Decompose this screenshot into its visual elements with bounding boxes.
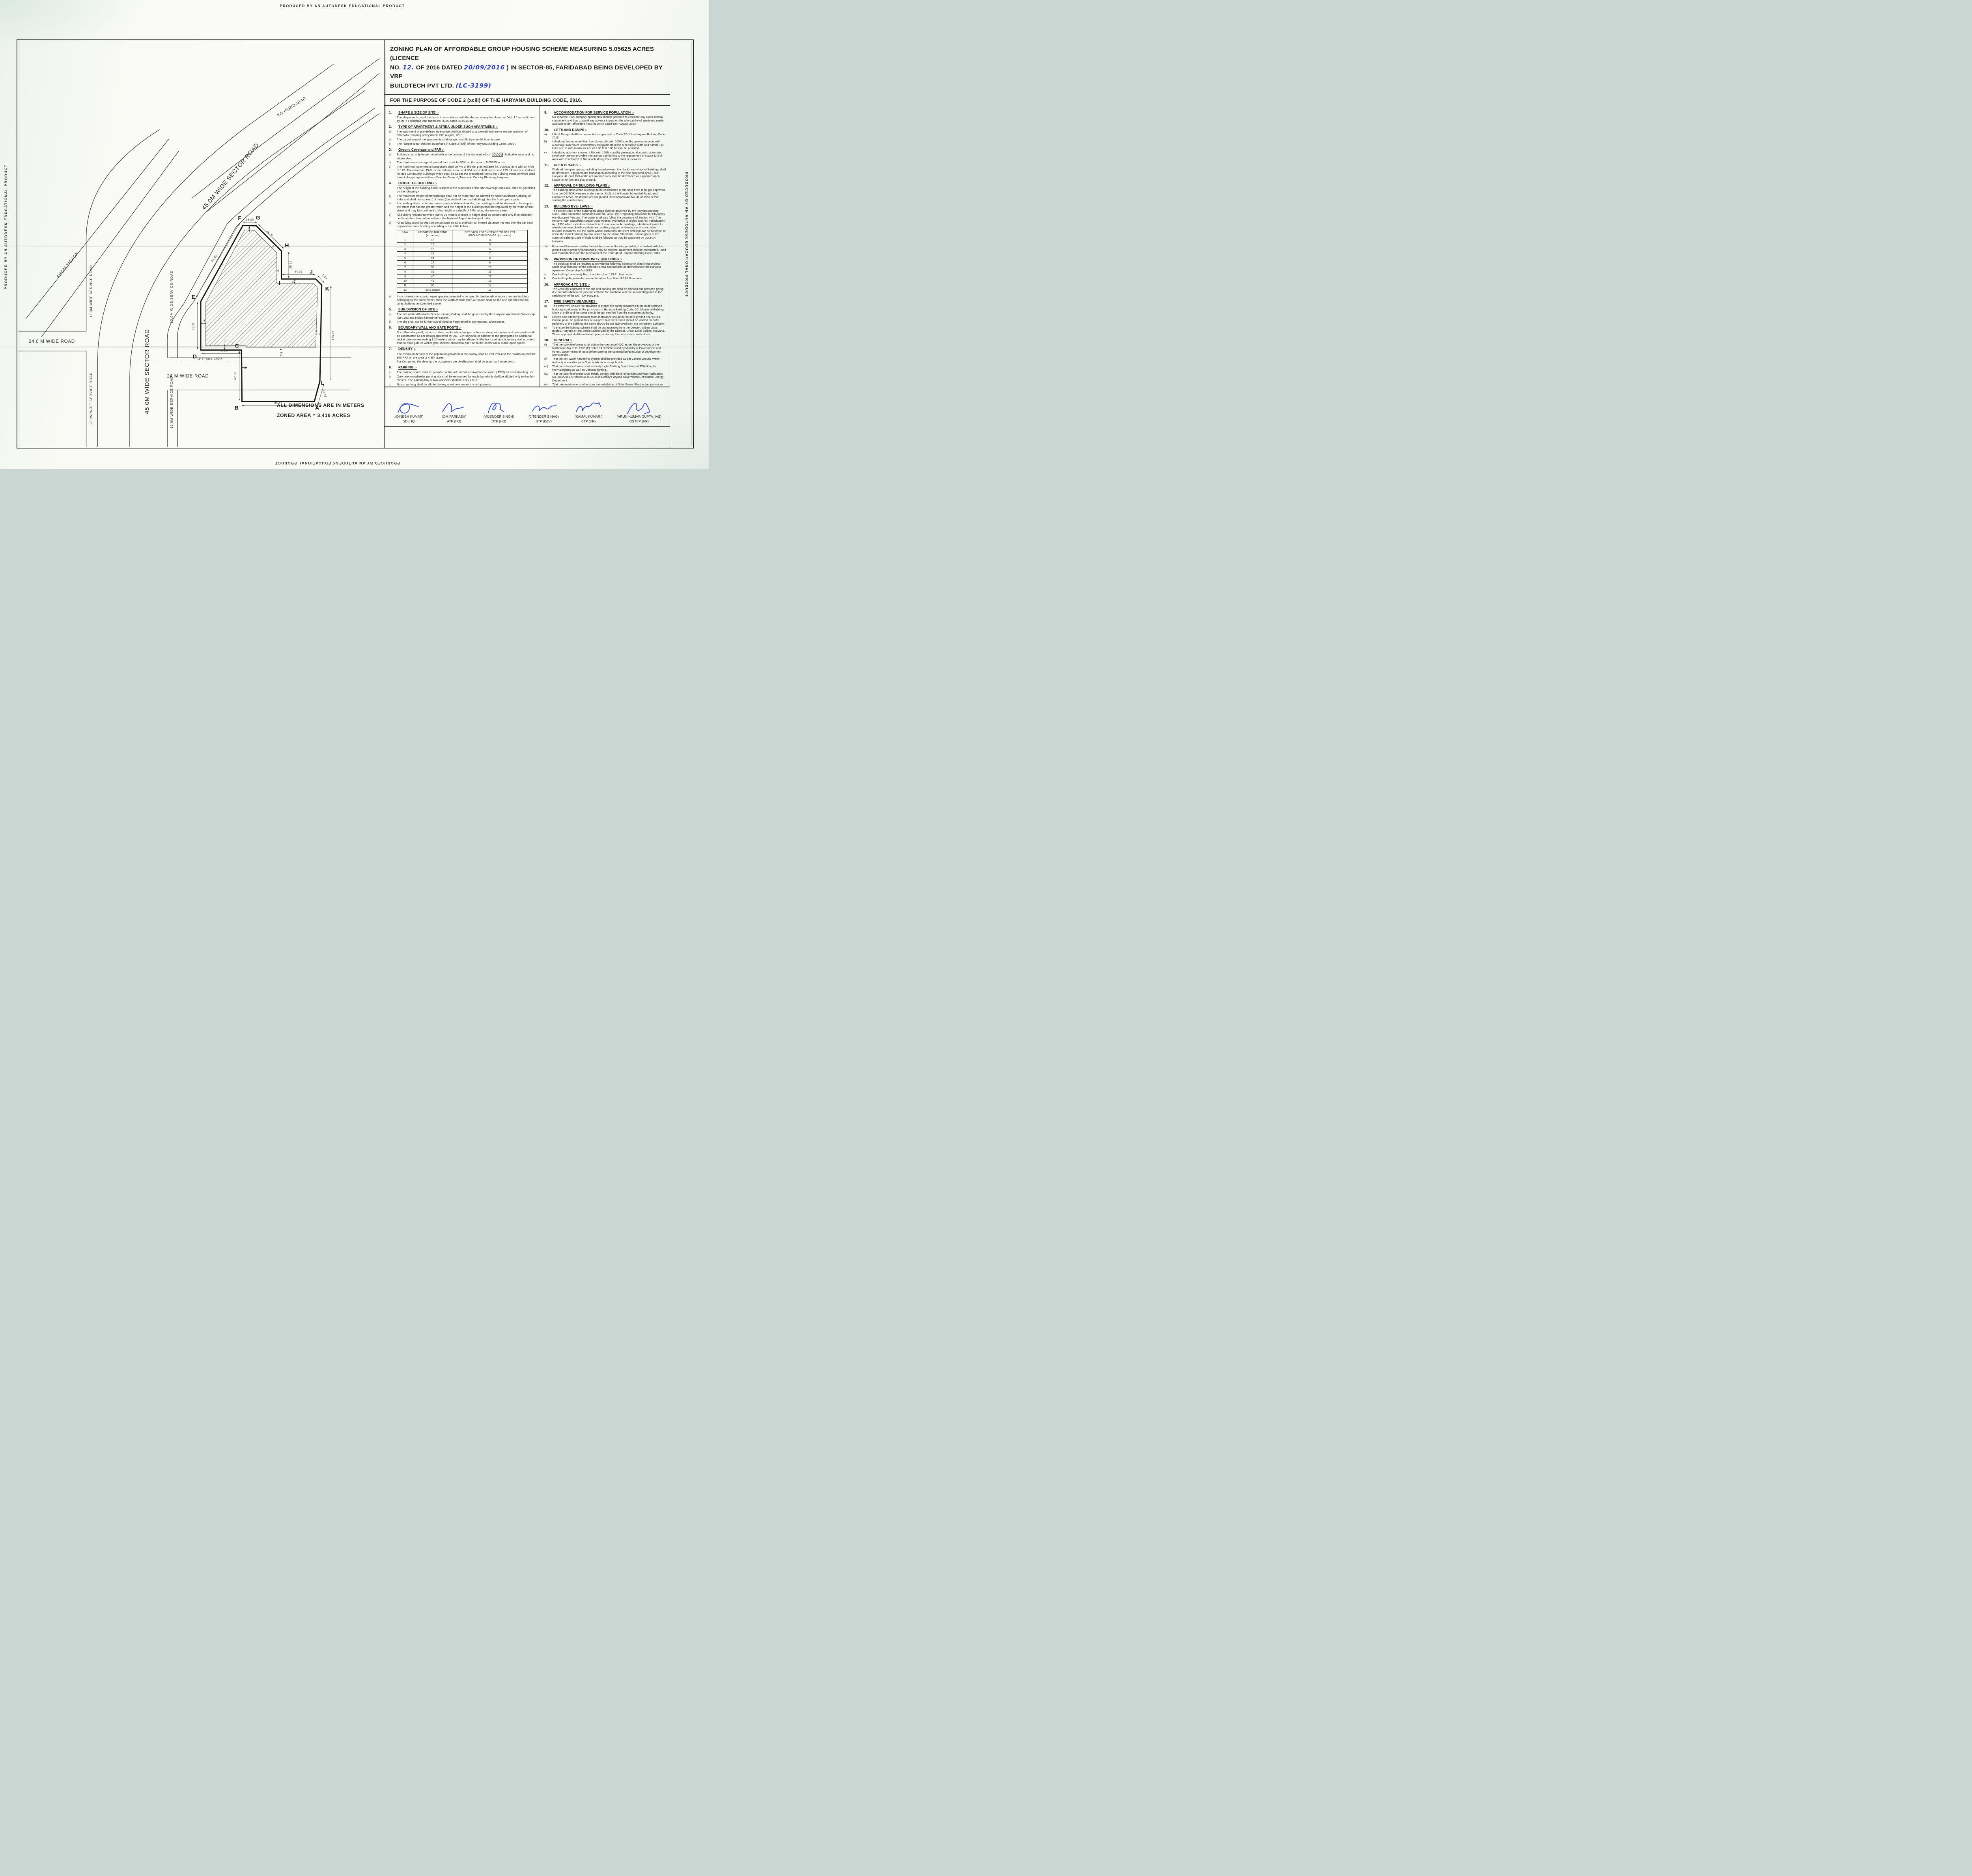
title-block: ZONING PLAN OF AFFORDABLE GROUP HOUSING … (385, 40, 670, 95)
clauses-column-right: 9.ACCOMMODATION FOR SERVICE POPULATION :… (540, 106, 670, 387)
clause-text: That the coloniser/owner shall use only … (552, 365, 666, 372)
clause-title: PARKING :- (398, 365, 417, 369)
dimension-label: 6 (224, 340, 225, 343)
clause-item: The building plans of the buildings to b… (544, 189, 666, 202)
signatory: (KAMAL KUMAR )CTP (HR) (572, 400, 605, 424)
dimension-label: 29.51 (289, 261, 292, 269)
road-label: 12.0M WIDE SERVICE ROAD (170, 271, 174, 323)
header-line: AROUND BUILDINGS. (in meters) (454, 234, 526, 237)
road-label: 45.0M WIDE SECTOR ROAD (144, 329, 151, 414)
clause-item: b)The carpet area of the apartments shal… (389, 138, 536, 141)
clause-item-label: a) (544, 305, 552, 315)
autodesk-note-left: PRODUCED BY AN AUTODESK EDUCATIONAL PROD… (4, 164, 8, 290)
buildable-zone-hatch (205, 230, 318, 347)
clause-item: While all the open spaces including thos… (544, 168, 666, 181)
clause-text: That coloniser/owner shall ensure the in… (552, 383, 666, 387)
table-cell: 55 & above (413, 288, 452, 293)
text-panel: ZONING PLAN OF AFFORDABLE GROUP HOUSING … (384, 40, 693, 448)
clause-item: c)All building /structures which rise to… (389, 213, 536, 220)
signature-scribble (622, 400, 655, 415)
clause-title: ACCOMMODATION FOR SERVICE POPULATION :- (554, 110, 634, 114)
clause-item-label: a) (389, 312, 397, 320)
signatory-name: (JITENDER SIHAG) (527, 414, 560, 419)
signature-scribble (527, 400, 560, 415)
clause-title: PROVISION OF COMMUNITY BUILDINGS :- (554, 257, 622, 261)
clause-section: 12.APPROVAL OF BUILDING PLANS :-The buil… (544, 183, 666, 202)
clause-text: If such interior or exterior open space … (397, 295, 536, 305)
clause-section: 14.Four level Basements within the build… (544, 245, 666, 255)
clause-number: 6. (389, 325, 398, 329)
table-cell: 5 (397, 256, 413, 261)
road-label: 24 M WIDE ROAD (167, 374, 209, 379)
signatory-title: DGTCP (HR) (617, 419, 661, 424)
table-cell: 9 (397, 274, 413, 279)
clause-heading: 2.TYPE OF APARTMENT & ATREA UNDER SUCH A… (389, 125, 536, 129)
road-label: 24.0 M WIDE ROAD (29, 339, 75, 344)
clause-title: APPROACH TO SITE :- (554, 282, 590, 286)
table-header-row: S.No.HEIGHT OF BUILDING(in meters)SET BA… (397, 230, 528, 238)
clause-item-label: b) (389, 161, 397, 164)
table-cell: 35 (413, 270, 452, 275)
plot-vertex-label: E (192, 293, 195, 300)
clause-title: DENSITY :- (398, 347, 416, 351)
clause-item-label: a) (544, 133, 552, 140)
clause-number: 17. (544, 299, 554, 303)
clause-text: The building plans of the buildings to b… (552, 189, 666, 202)
clause-text: Lifts & Ramps shall be constructed as sp… (552, 133, 666, 140)
clause-item-label: c) (389, 213, 397, 220)
header-line: (in meters) (415, 234, 451, 237)
clause-item: Such Boundary wall, railings or their co… (389, 331, 536, 345)
clause-text: The apartment of pre-defined size-range … (397, 130, 536, 137)
site-plan: TO FARIDABADFROM TIGAON45.0M WIDE SECTOR… (17, 40, 384, 448)
clause-heading: 9.ACCOMMODATION FOR SERVICE POPULATION :… (544, 110, 666, 114)
road-label: 11'-0" WIDE RASTA (198, 358, 222, 361)
clause-text: The site of the Affordable Group Housing… (397, 312, 536, 320)
clause-heading: 18.GENERAL:- (544, 338, 666, 342)
signatory-title: STP (E&V) (527, 419, 560, 424)
dimension-label: 15.09 (246, 218, 254, 222)
plan-labels: TO FARIDABADFROM TIGAON45.0M WIDE SECTOR… (29, 96, 335, 428)
clause-text: The minimum density of the population pr… (397, 352, 536, 359)
table-cell: 3 (397, 247, 413, 252)
table-cell: 14 (452, 283, 528, 288)
table-row: 73010 (397, 265, 528, 270)
licence-number-handwritten: 12. (403, 64, 414, 71)
clause-title: BUILDING BYE- LAWS :- (554, 204, 593, 208)
table-row: 104513 (397, 279, 528, 284)
clause-item-label (389, 116, 397, 123)
dimension-label: 6 (204, 319, 205, 322)
table-row: 6279 (397, 261, 528, 265)
road-label: 12.0M WIDE SERVICE ROAD (89, 265, 93, 318)
signatory-title: SD (HQ) (393, 419, 426, 424)
clause-heading: 12.APPROVAL OF BUILDING PLANS :- (544, 183, 666, 187)
clauses-area: 1.SHAPE & SIZE OF SITE :-The shape and s… (385, 106, 670, 387)
setback-table: S.No.HEIGHT OF BUILDING(in meters)SET BA… (397, 230, 528, 293)
table-cell: 11 (452, 270, 528, 275)
clause-text: If a building abuts on two or more stree… (397, 202, 536, 212)
clause-item: The height of the building block, subjec… (389, 186, 536, 193)
clause-text: In building having more than four storey… (552, 140, 666, 150)
plot-vertex-label: D (193, 353, 197, 359)
clause-heading: 17.FIRE SAFETY MEASURES : (544, 299, 666, 303)
clause-number: 18. (544, 338, 554, 342)
clause-item-label: b. (389, 375, 397, 382)
clause-title: OPEN SPACES :- (554, 163, 581, 167)
clause-item: a)Building shall only be permitted with … (389, 153, 536, 160)
dimension-label: 6 (277, 269, 279, 273)
clause-item: c)To ensure fire fighting scheme shall b… (544, 326, 666, 336)
clause-section: 16.APPROACH TO SITE :-The vehicular appr… (544, 282, 666, 298)
road-label: 12.0M WIDE SERVICE ROAD (170, 376, 174, 428)
clause-title: GENERAL:- (554, 338, 572, 342)
clause-text: All Building Block(s) shall be construct… (397, 221, 536, 228)
clause-item-label: c. (389, 383, 397, 386)
table-row: 3186 (397, 247, 528, 252)
clause-number: 7. (389, 347, 398, 351)
dimension-label: 10.25 (321, 389, 327, 398)
clause-item: The minimum density of the population pr… (389, 352, 536, 359)
clause-item: a)The site of the Affordable Group Housi… (389, 312, 536, 320)
table-cell: 9 (452, 261, 528, 265)
sheet-border: TO FARIDABADFROM TIGAON45.0M WIDE SECTOR… (17, 39, 694, 448)
clause-item: a)The owner will ensure the provision of… (544, 305, 666, 315)
signatory-name: (OM PARKASH) (437, 414, 471, 419)
dimension-label: 45.26 (192, 322, 195, 330)
table-row: 1255 & above16 (397, 288, 528, 293)
signatory-title: CTP (HR) (572, 419, 605, 424)
clause-item: a)The apartment of pre-defined size-rang… (389, 130, 536, 137)
clause-section: 7.DENSITY :-The minimum density of the p… (389, 347, 536, 363)
clause-item-label: (i) (544, 343, 552, 357)
clause-item: d)All Building Block(s) shall be constru… (389, 221, 536, 228)
signatory: (OM PARKASH)ATP (HQ) (437, 400, 471, 424)
signature-scribble (572, 400, 605, 415)
clause-text: For Computing the density, the occupancy… (397, 360, 536, 363)
clause-text: Only one two-wheeler parking site shall … (397, 375, 536, 382)
table-header-cell: S.No. (397, 230, 413, 238)
clause-text: The maximum height of the buildings shal… (397, 194, 536, 201)
table-cell: 10 (397, 279, 413, 284)
clause-item-label (544, 168, 552, 181)
dimension-label: 6 (245, 366, 246, 370)
clause-number: 2. (389, 125, 398, 129)
clause-number: 9. (544, 110, 554, 114)
plot-vertex-label: L (321, 380, 325, 386)
lc-number-handwritten: (LC-3199) (456, 82, 491, 89)
clause-title: SHAPE & SIZE OF SITE :- (398, 110, 439, 114)
clause-title: APPROVAL OF BUILDING PLANS :- (554, 183, 610, 187)
road-label: 12.0M WIDE SERVICE ROAD (89, 372, 93, 425)
clause-item: b)Electric Sub Station/generator room if… (544, 316, 666, 326)
clause-text: That the coloniser/owner shall strictly … (552, 372, 666, 383)
purpose-line: FOR THE PURPOSE OF CODE 2 (xciii) OF THE… (385, 95, 670, 106)
clause-item: c)The maximum commercial component shall… (389, 165, 536, 179)
clause-item-label: b) (389, 320, 397, 323)
table-cell: 2 (397, 243, 413, 247)
clause-item-label: (v) (544, 383, 552, 387)
dimension-label: 8 (280, 352, 283, 353)
clause-text: One built-up community Hall of not less … (552, 273, 666, 277)
signatory-name: (VIJENDER SINGH) (482, 414, 515, 419)
table-row: 1103 (397, 238, 528, 243)
signatory: (JITENDER SIHAG)STP (E&V) (527, 400, 560, 424)
clause-heading: 5.SUB DIVISION OF SITE :- (389, 307, 536, 311)
clause-item-label (389, 331, 397, 345)
clause-heading: 13.BUILDING BYE- LAWS :- (544, 204, 666, 208)
clause-item-label: (ii) (544, 357, 552, 364)
table-header-cell: HEIGHT OF BUILDING(in meters) (413, 230, 452, 238)
clause-number: 13. (544, 204, 554, 208)
clause-item: For Computing the density, the occupancy… (389, 360, 536, 363)
clause-section: 10.LIFTS AND RAMPS :-a)Lifts & Ramps sha… (544, 128, 666, 161)
road-label: TO FARIDABAD (277, 96, 307, 118)
scanned-zoning-plan-sheet: PRODUCED BY AN AUTODESK EDUCATIONAL PROD… (0, 0, 709, 469)
clause-item-label: b) (389, 202, 397, 212)
buildable-zone-hatch-swatch (492, 153, 503, 157)
clause-text: The coloniser shall be required to provi… (552, 262, 666, 273)
clause-item: c)In building upto four storeys, if lift… (544, 151, 666, 161)
clause-item: b.One built-up Anganwadi-cum-creche of n… (544, 277, 666, 280)
clause-item-label: a) (389, 153, 397, 160)
plot-vertex-label: C (235, 343, 239, 349)
clause-text: No car parking shall be allotted to any … (397, 383, 536, 386)
clause-item-label: c) (544, 326, 552, 336)
clause-item: (i)That the coloniser/owner shall obtain… (544, 343, 666, 357)
plot-vertex-label: B (235, 404, 239, 411)
clause-item: No separate EWS category apartments shal… (544, 116, 666, 126)
dimension-label: 125.75 (331, 331, 335, 340)
clause-number: 12. (544, 183, 554, 187)
clause-item-label: b) (544, 140, 552, 150)
clause-text: While all the open spaces including thos… (552, 168, 666, 181)
title-text: NO. (390, 64, 401, 71)
clause-item: b)The site shall not be further sub-divi… (389, 320, 536, 323)
clause-title: TYPE OF APARTMENT & ATREA UNDER SUCH APA… (398, 125, 498, 129)
table-cell: 5 (452, 243, 528, 247)
clause-text: The parking space shall be provided at t… (397, 370, 536, 374)
signatory-name: (ARUN KUMAR GUPTA, IAS) (617, 414, 661, 419)
dimension-label: 7.25 (321, 273, 328, 280)
clause-title: HEIGHT OF BUILDING :- (398, 181, 437, 185)
clause-text: The site shall not be further sub-divide… (397, 320, 536, 323)
table-cell: 16 (452, 288, 528, 293)
clause-section: 15.PROVISION OF COMMUNITY BUILDINGS :-Th… (544, 257, 666, 280)
signatory: (VIJENDER SINGH)DTP (HQ) (482, 400, 515, 424)
header-line: HEIGHT OF BUILDING (415, 231, 451, 234)
road-network (19, 58, 379, 447)
clause-item-label (544, 209, 552, 243)
clause-item: a.The parking space shall be provided at… (389, 370, 536, 374)
clause-item-label: c) (389, 165, 397, 179)
clause-text: The maximum coverage of ground floor sha… (397, 161, 536, 164)
clause-item-label: a. (544, 273, 552, 277)
clause-title: FIRE SAFETY MEASURES : (554, 299, 598, 303)
table-cell: 6 (397, 261, 413, 265)
plot-vertex-label: J (310, 268, 313, 275)
clause-item: b.Only one two-wheeler parking site shal… (389, 375, 536, 382)
table-cell: 6 (452, 247, 528, 252)
clause-text: The carpet area of the apartments shall … (397, 138, 536, 141)
clause-text: Four level Basements within the building… (552, 245, 666, 255)
clause-item: c)The "carpet area" shall be as defined … (389, 142, 536, 146)
table-cell: 24 (413, 256, 452, 261)
clause-text: To ensure fire fighting scheme shall be … (552, 326, 666, 336)
clause-heading: 16.APPROACH TO SITE :- (544, 282, 666, 286)
plan-note-dimensions: ALL DIMENSIONS ARE IN METERS (277, 402, 364, 408)
clause-heading: 8.PARKING :- (389, 365, 536, 369)
table-cell: 13 (452, 279, 528, 284)
table-cell: 1 (397, 238, 413, 243)
clause-heading: 15.PROVISION OF COMMUNITY BUILDINGS :- (544, 257, 666, 261)
table-cell: 7 (397, 265, 413, 270)
clause-item-label: 14. (544, 245, 552, 255)
signatory-title: DTP (HQ) (482, 419, 515, 424)
clause-item: The construction of the building/buildin… (544, 209, 666, 243)
table-cell: 45 (413, 279, 452, 284)
table-cell: 12 (397, 288, 413, 293)
table-row: 83511 (397, 270, 528, 275)
clause-number: 1. (389, 110, 398, 114)
plot-vertex-label: F (238, 215, 241, 221)
signature-row: (DINESH KUMAR)SD (HQ)(OM PARKASH)ATP (HQ… (385, 387, 670, 427)
signatory: (ARUN KUMAR GUPTA, IAS)DGTCP (HR) (617, 400, 661, 424)
table-cell: 4 (397, 252, 413, 256)
clause-text: All building /structures which rise to 3… (397, 213, 536, 220)
clause-text: Building shall only be permitted with in… (397, 153, 536, 160)
clause-text: In building upto four storeys, if lifts … (552, 151, 666, 161)
clause-text: One built-up Anganwadi-cum-creche of not… (552, 277, 666, 280)
signatory-name: (KAMAL KUMAR ) (572, 414, 605, 419)
clause-item: a)Lifts & Ramps shall be constructed as … (544, 133, 666, 140)
clause-text: The owner will ensure the provision of p… (552, 305, 666, 315)
road-label: FROM TIGAON (56, 251, 80, 279)
clause-item: (v)That coloniser/owner shall ensure the… (544, 383, 666, 387)
clause-item-label: a. (389, 370, 397, 374)
clauses-column-left: 1.SHAPE & SIZE OF SITE :-The shape and s… (385, 106, 540, 387)
table-row: 2155 (397, 243, 528, 247)
title-line-3: BUILDTECH PVT LTD. (LC-3199) (390, 81, 666, 91)
autodesk-note-bottom: PRODUCED BY AN AUTODESK EDUCATIONAL PROD… (275, 461, 400, 465)
table-cell: 11 (397, 283, 413, 288)
clause-section: 18.GENERAL:-(i)That the coloniser/owner … (544, 338, 666, 387)
clause-text: The "carpet area" shall be as defined in… (397, 142, 536, 146)
clause-section: e)If such interior or exterior open spac… (389, 295, 536, 305)
clause-item-label: d) (389, 221, 397, 228)
table-row: 4217 (397, 252, 528, 256)
clause-number: 15. (544, 257, 554, 261)
clause-title: BOUNDARY WALL AND GATE POSTS :- (398, 325, 461, 329)
clause-text: Such Boundary wall, railings or their co… (397, 331, 536, 345)
clause-heading: 7.DENSITY :- (389, 347, 536, 351)
clause-number: 8. (389, 365, 398, 369)
clause-item-label: e) (389, 295, 397, 305)
clause-heading: 1.SHAPE & SIZE OF SITE :- (389, 110, 536, 114)
signatory-name: (DINESH KUMAR) (393, 414, 426, 419)
clause-section: 5.SUB DIVISION OF SITE :-a)The site of t… (389, 307, 536, 324)
clause-item-label (544, 116, 552, 126)
clause-item: (iv)That the coloniser/owner shall stric… (544, 372, 666, 383)
clause-item-label: b. (544, 277, 552, 280)
clause-item: 14.Four level Basements within the build… (544, 245, 666, 255)
clause-item-label: c) (389, 142, 397, 146)
clause-item-label (389, 186, 397, 193)
clause-title: LIFTS AND RAMPS :- (554, 128, 587, 132)
clause-section: 8.PARKING :-a.The parking space shall be… (389, 365, 536, 387)
table-cell: 21 (413, 252, 452, 256)
licence-date-handwritten: 20/09/2016 (464, 64, 505, 71)
clause-section: 9.ACCOMMODATION FOR SERVICE POPULATION :… (544, 110, 666, 126)
dimension-label: 50.29 (220, 349, 228, 353)
signature-scribble (482, 400, 515, 415)
title-text: BUILDTECH PVT LTD. (390, 82, 454, 89)
clause-item: The coloniser shall be required to provi… (544, 262, 666, 273)
clause-title: SUB DIVISION OF SITE :- (398, 307, 438, 311)
clause-number: 11. (544, 163, 554, 167)
table-cell: 15 (413, 243, 452, 247)
clause-item: b)In building having more than four stor… (544, 140, 666, 150)
clause-title: Ground Coverage and FAR :- (398, 148, 444, 151)
table-cell: 30 (413, 265, 452, 270)
clause-item-label (389, 360, 397, 363)
clause-text: That the coloniser/owner shall obtain th… (552, 343, 666, 357)
dimension-label: 67.06 (233, 372, 237, 380)
title-line-2: NO. 12. OF 2016 DATED 20/09/2016 ) IN SE… (390, 63, 666, 82)
clause-item-label: a) (389, 194, 397, 201)
table-row: 5248 (397, 256, 528, 261)
title-line-1: ZONING PLAN OF AFFORDABLE GROUP HOUSING … (390, 45, 666, 63)
clause-item-label: b) (389, 138, 397, 141)
table-cell: 40 (413, 274, 452, 279)
clause-heading: 6.BOUNDARY WALL AND GATE POSTS :- (389, 325, 536, 329)
clause-item-label: b) (544, 316, 552, 326)
clause-section: 2.TYPE OF APARTMENT & ATREA UNDER SUCH A… (389, 125, 536, 145)
clause-item-label (544, 262, 552, 273)
clause-section: 3.Ground Coverage and FAR :-a)Building s… (389, 148, 536, 179)
clause-text: Electric Sub Station/generator room if p… (552, 316, 666, 326)
signature-scribble (393, 400, 426, 415)
clause-number: 3. (389, 148, 398, 151)
header-line: SET BACK / OPEN SPACE TO BE LEFT (454, 231, 526, 234)
table-header-cell: SET BACK / OPEN SPACE TO BE LEFTAROUND B… (452, 230, 528, 238)
plot-boundary (201, 225, 322, 401)
clause-item: The vehicular approach to the site and p… (544, 288, 666, 298)
table-cell: 50 (413, 283, 452, 288)
clause-text: The vehicular approach to the site and p… (552, 288, 666, 298)
clause-item-label (389, 352, 397, 359)
clause-item: a.One built-up community Hall of not les… (544, 273, 666, 277)
table-cell: 27 (413, 261, 452, 265)
clause-section: 1.SHAPE & SIZE OF SITE :-The shape and s… (389, 110, 536, 123)
clause-text: The maximum commercial component shall b… (397, 165, 536, 179)
clause-number: 10. (544, 128, 554, 132)
clause-heading: 11.OPEN SPACES :- (544, 163, 666, 167)
clause-text: No separate EWS category apartments shal… (552, 116, 666, 126)
clause-item-label (544, 288, 552, 298)
clause-item-label: a) (389, 130, 397, 137)
table-row: 94012 (397, 274, 528, 279)
clause-item-label: c) (544, 151, 552, 161)
clause-section: 6.BOUNDARY WALL AND GATE POSTS :-Such Bo… (389, 325, 536, 345)
clause-heading: 4.HEIGHT OF BUILDING :- (389, 181, 536, 185)
clause-text: That the rain water harvesting system sh… (552, 357, 666, 364)
clause-heading: 3.Ground Coverage and FAR :- (389, 148, 536, 151)
header-line: S.No. (398, 231, 412, 234)
table-cell: 7 (452, 252, 528, 256)
signatory: (DINESH KUMAR)SD (HQ) (393, 400, 426, 424)
clause-item: e)If such interior or exterior open spac… (389, 295, 536, 305)
